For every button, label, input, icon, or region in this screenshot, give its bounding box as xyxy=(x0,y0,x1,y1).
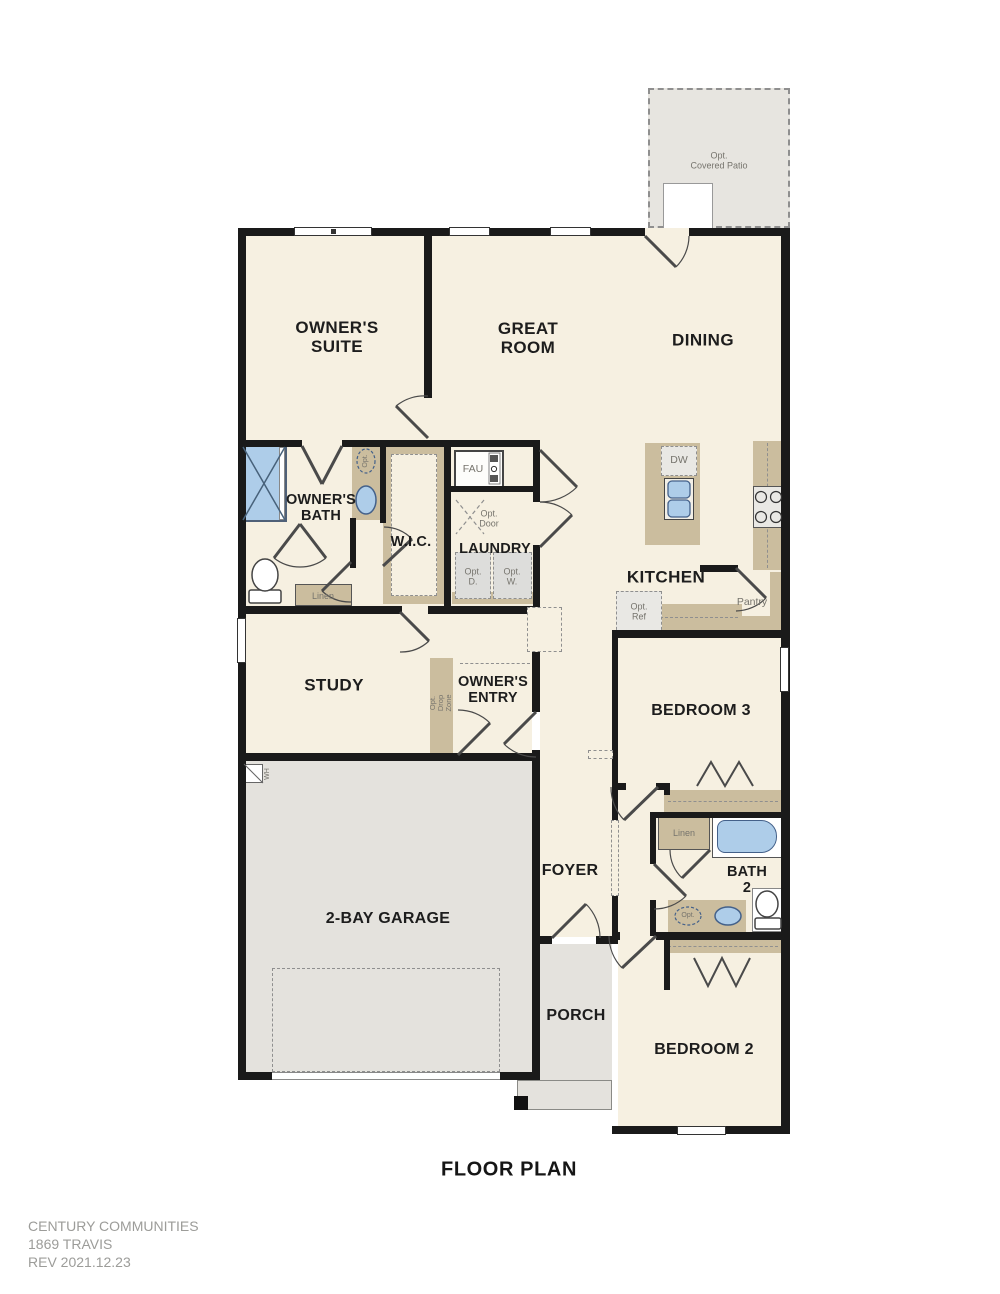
label-great-room: GREAT ROOM xyxy=(498,319,558,357)
wall-vanity-wic xyxy=(380,443,386,523)
label-linen-bath2: Linen xyxy=(673,828,695,838)
label-study: STUDY xyxy=(304,675,364,694)
garage-door-zone xyxy=(272,968,500,1072)
label-owners-suite: OWNER'S SUITE xyxy=(295,318,378,356)
label-opt-drop-zone: Opt. Drop Zone xyxy=(429,694,453,711)
label-bedroom2: BEDROOM 2 xyxy=(654,1041,754,1059)
floor-foyer-corridor xyxy=(540,638,612,937)
patio-marker-box xyxy=(663,183,713,229)
patio-door-opening xyxy=(645,228,689,236)
opening-foyer-hall xyxy=(611,820,619,896)
window-greatroom-1 xyxy=(449,227,490,236)
footer-plan-name: 1869 TRAVIS xyxy=(28,1236,112,1252)
floor-plan-page: { "title": "FLOOR PLAN", "footer": { "li… xyxy=(0,0,1000,1294)
label-foyer: FOYER xyxy=(542,862,599,880)
window-bedroom3 xyxy=(780,647,789,692)
wall-garage-study-divider xyxy=(238,753,540,761)
closet3-shelf-line xyxy=(668,801,778,802)
label-opt-covered-patio: Opt. Covered Patio xyxy=(690,151,747,172)
opening-entry-foyer xyxy=(588,750,613,759)
bath2-tub xyxy=(717,820,777,853)
wic-carpet-inner xyxy=(391,454,437,596)
wall-wic-right xyxy=(444,440,451,606)
label-garage: 2-BAY GARAGE xyxy=(326,910,451,928)
label-owners-entry: OWNER'S ENTRY xyxy=(458,674,528,706)
label-linen-owners-bath: Linen xyxy=(312,591,334,601)
wall-entry-right-b xyxy=(532,750,540,760)
label-bath2: BATH 2 xyxy=(727,864,767,896)
wall-bed2-top-b xyxy=(656,932,788,940)
wall-bath-top-b xyxy=(342,440,540,447)
footer-company: CENTURY COMMUNITIES xyxy=(28,1218,199,1234)
porch-post xyxy=(514,1096,528,1110)
label-opt-door: Opt. Door xyxy=(479,509,499,530)
shower-glass-strip xyxy=(279,447,285,520)
wall-pantry-top xyxy=(700,565,738,572)
bath2-vanity xyxy=(668,900,746,932)
wall-bed3-bottom-a xyxy=(612,783,626,790)
wall-foyer-bottom-a xyxy=(536,936,552,944)
label-opt-washer: Opt. W. xyxy=(503,567,520,588)
window-study xyxy=(237,618,246,663)
label-wic: W.I.C. xyxy=(391,534,432,550)
window-mullion xyxy=(331,229,336,234)
wall-closet2-left xyxy=(664,940,670,990)
water-heater-box xyxy=(244,764,263,783)
wall-kitchen-bed3-divider xyxy=(612,630,790,638)
plan-title: FLOOR PLAN xyxy=(441,1159,577,1182)
opening-greatroom-hall xyxy=(527,607,562,652)
label-dw: DW xyxy=(670,455,688,467)
wall-closet3-left xyxy=(664,783,670,795)
closet2-shelf-line xyxy=(668,946,778,947)
window-bedroom2 xyxy=(677,1126,726,1135)
label-opt-sink-owners-bath: Opt. xyxy=(362,454,370,467)
island-sink-unit xyxy=(664,478,694,520)
footer-block: CENTURY COMMUNITIES 1869 TRAVIS REV 2021… xyxy=(28,1217,199,1272)
wall-bath-wic-lower xyxy=(350,518,356,568)
garage-door-opening xyxy=(272,1072,500,1080)
wall-bed2-top-a xyxy=(612,932,620,940)
wall-study-top-b xyxy=(428,606,540,614)
label-porch: PORCH xyxy=(546,1007,605,1025)
label-opt-ref: Opt. Ref xyxy=(630,602,647,623)
wall-corridor-b xyxy=(612,896,618,936)
wall-laundry-right-a xyxy=(533,443,540,502)
wall-bath2-top xyxy=(650,812,788,818)
label-opt-dryer: Opt. D. xyxy=(464,567,481,588)
stove-cooktop xyxy=(753,486,782,528)
wall-suite-greatroom-divider xyxy=(424,228,432,398)
window-greatroom-2 xyxy=(550,227,591,236)
label-opt-sink-bath2: Opt. xyxy=(681,912,694,920)
wall-garage-right xyxy=(532,760,540,1072)
label-laundry: LAUNDRY xyxy=(459,541,531,557)
label-pantry: Pantry xyxy=(737,597,767,609)
entry-header-line xyxy=(460,663,530,664)
label-dining: DINING xyxy=(672,330,734,349)
wall-bath-top-a xyxy=(238,440,302,447)
wall-hall-lower xyxy=(650,900,656,936)
wall-corridor-a xyxy=(612,638,618,820)
label-water-heater: WH xyxy=(264,768,272,780)
floor-porch-step xyxy=(517,1080,612,1110)
wall-hall-linen xyxy=(650,812,656,864)
label-fau: FAU xyxy=(463,464,483,476)
bedroom3-closet-shelf xyxy=(664,790,781,814)
wall-fau-laundry-divider xyxy=(451,486,534,492)
label-bedroom3: BEDROOM 3 xyxy=(651,702,751,720)
footer-revision: REV 2021.12.23 xyxy=(28,1254,131,1270)
wall-laundry-right-b xyxy=(533,545,540,606)
label-kitchen: KITCHEN xyxy=(627,567,705,586)
wall-study-top-a xyxy=(238,606,402,614)
label-owners-bath: OWNER'S BATH xyxy=(286,492,356,524)
